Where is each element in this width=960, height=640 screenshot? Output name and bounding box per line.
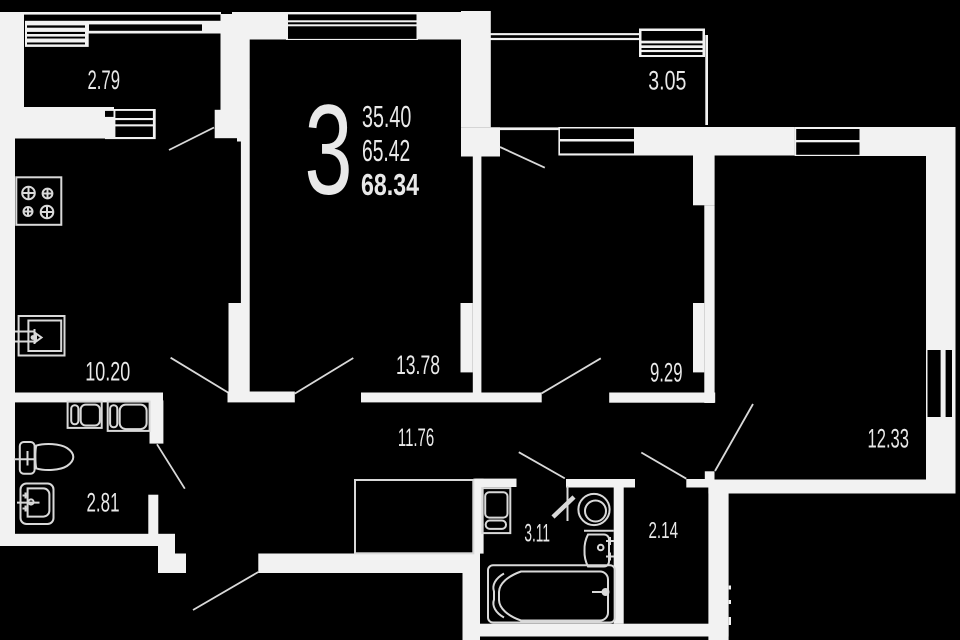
- svg-text:13.78: 13.78: [396, 350, 440, 380]
- svg-text:2.81: 2.81: [87, 488, 120, 518]
- svg-text:3.05: 3.05: [648, 65, 686, 95]
- svg-text:3.11: 3.11: [524, 520, 550, 548]
- svg-text:10.20: 10.20: [85, 357, 130, 387]
- svg-text:65.42: 65.42: [362, 133, 410, 168]
- svg-text:12.33: 12.33: [868, 424, 910, 454]
- svg-text:35.40: 35.40: [362, 99, 411, 134]
- svg-text:68.34: 68.34: [361, 167, 420, 202]
- svg-text:11.76: 11.76: [398, 424, 434, 452]
- svg-text:9.29: 9.29: [650, 358, 683, 388]
- svg-text:2.14: 2.14: [649, 517, 679, 543]
- svg-text:3: 3: [305, 79, 353, 222]
- svg-text:2.79: 2.79: [88, 65, 121, 95]
